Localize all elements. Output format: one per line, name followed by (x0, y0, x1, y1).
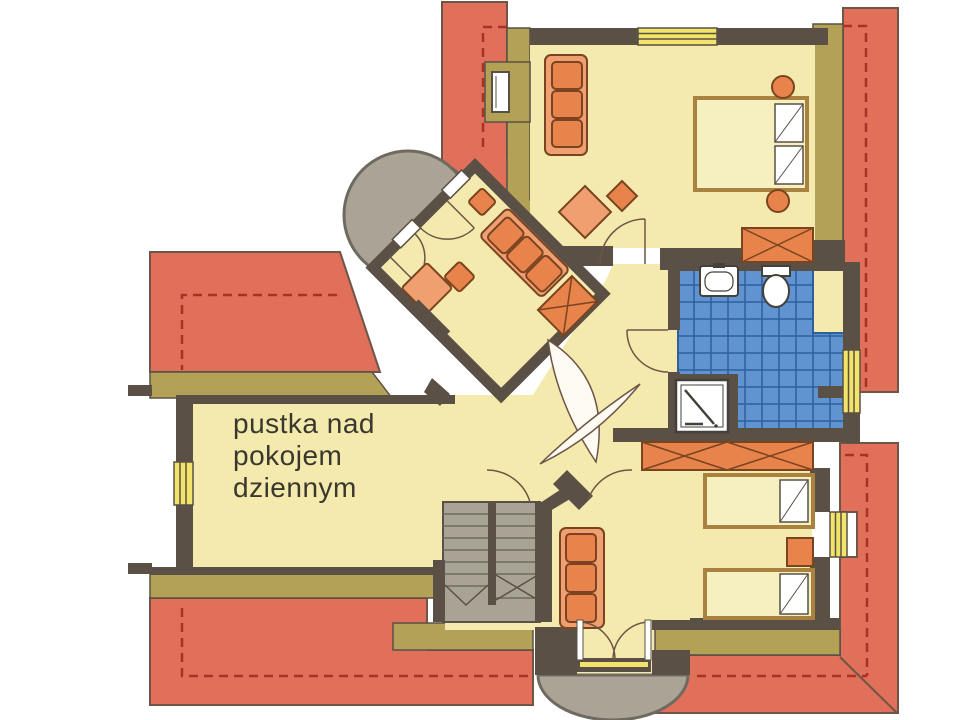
void-room-label-line1: pustka nad (233, 408, 375, 440)
wall-vestibule-right-b (652, 650, 690, 675)
floor-plan: pustka nad pokojem dziennym (0, 0, 960, 720)
window-bath-right (843, 350, 860, 413)
void-room-label-line2: pokojem (233, 440, 375, 472)
sofa-bedroom2 (560, 528, 604, 628)
wall-vestibule-right-a (652, 620, 690, 630)
bed2-a (705, 475, 813, 527)
shower (676, 380, 728, 432)
wardrobe-bath-top (742, 228, 813, 262)
knee-bottom-left (150, 572, 443, 598)
wall-shower-right (728, 374, 738, 434)
sink (700, 263, 738, 296)
roof-window (485, 62, 530, 122)
wall-stub-right (818, 386, 845, 398)
wall-bedroom-top-left (530, 28, 638, 45)
wall-void-bottom (150, 567, 445, 575)
wall-stub-left-a (128, 385, 152, 396)
bed2-b (705, 570, 813, 618)
stairs (443, 502, 540, 622)
knee-left (150, 372, 392, 398)
floor-plan-drawing (0, 0, 960, 720)
toilet (762, 266, 790, 307)
wall-stub-left-b (128, 563, 152, 574)
bed-main-table-bottom (767, 190, 789, 212)
bed-main-table-top (772, 76, 794, 98)
wall-bath-right-upper (843, 262, 860, 350)
wardrobe-bedroom2 (642, 442, 813, 470)
wall-bedroom-top-right (717, 28, 828, 45)
wall-void-left-upper (176, 395, 193, 462)
window-void-left (174, 462, 193, 505)
sofa-main-bedroom (545, 55, 587, 155)
wall-bath-right-lower (843, 413, 860, 443)
wall-bath-left-upper (668, 271, 680, 330)
void-room-label-line3: dziennym (233, 472, 375, 504)
wall-void-left-lower (176, 505, 193, 570)
window-bedroom-top (638, 28, 717, 45)
wall-void-top (192, 395, 455, 404)
window-bed2-right (830, 512, 847, 557)
roof-left (150, 252, 380, 372)
void-room-label: pustka nad pokojem dziennym (233, 408, 375, 504)
nightstand-bedroom2 (787, 538, 813, 566)
wall-bath-top (668, 262, 845, 271)
bed-main (695, 76, 807, 212)
wall-vestibule-left (535, 627, 577, 675)
wall-stairs-right (535, 502, 552, 622)
stair-stringer (488, 502, 496, 605)
